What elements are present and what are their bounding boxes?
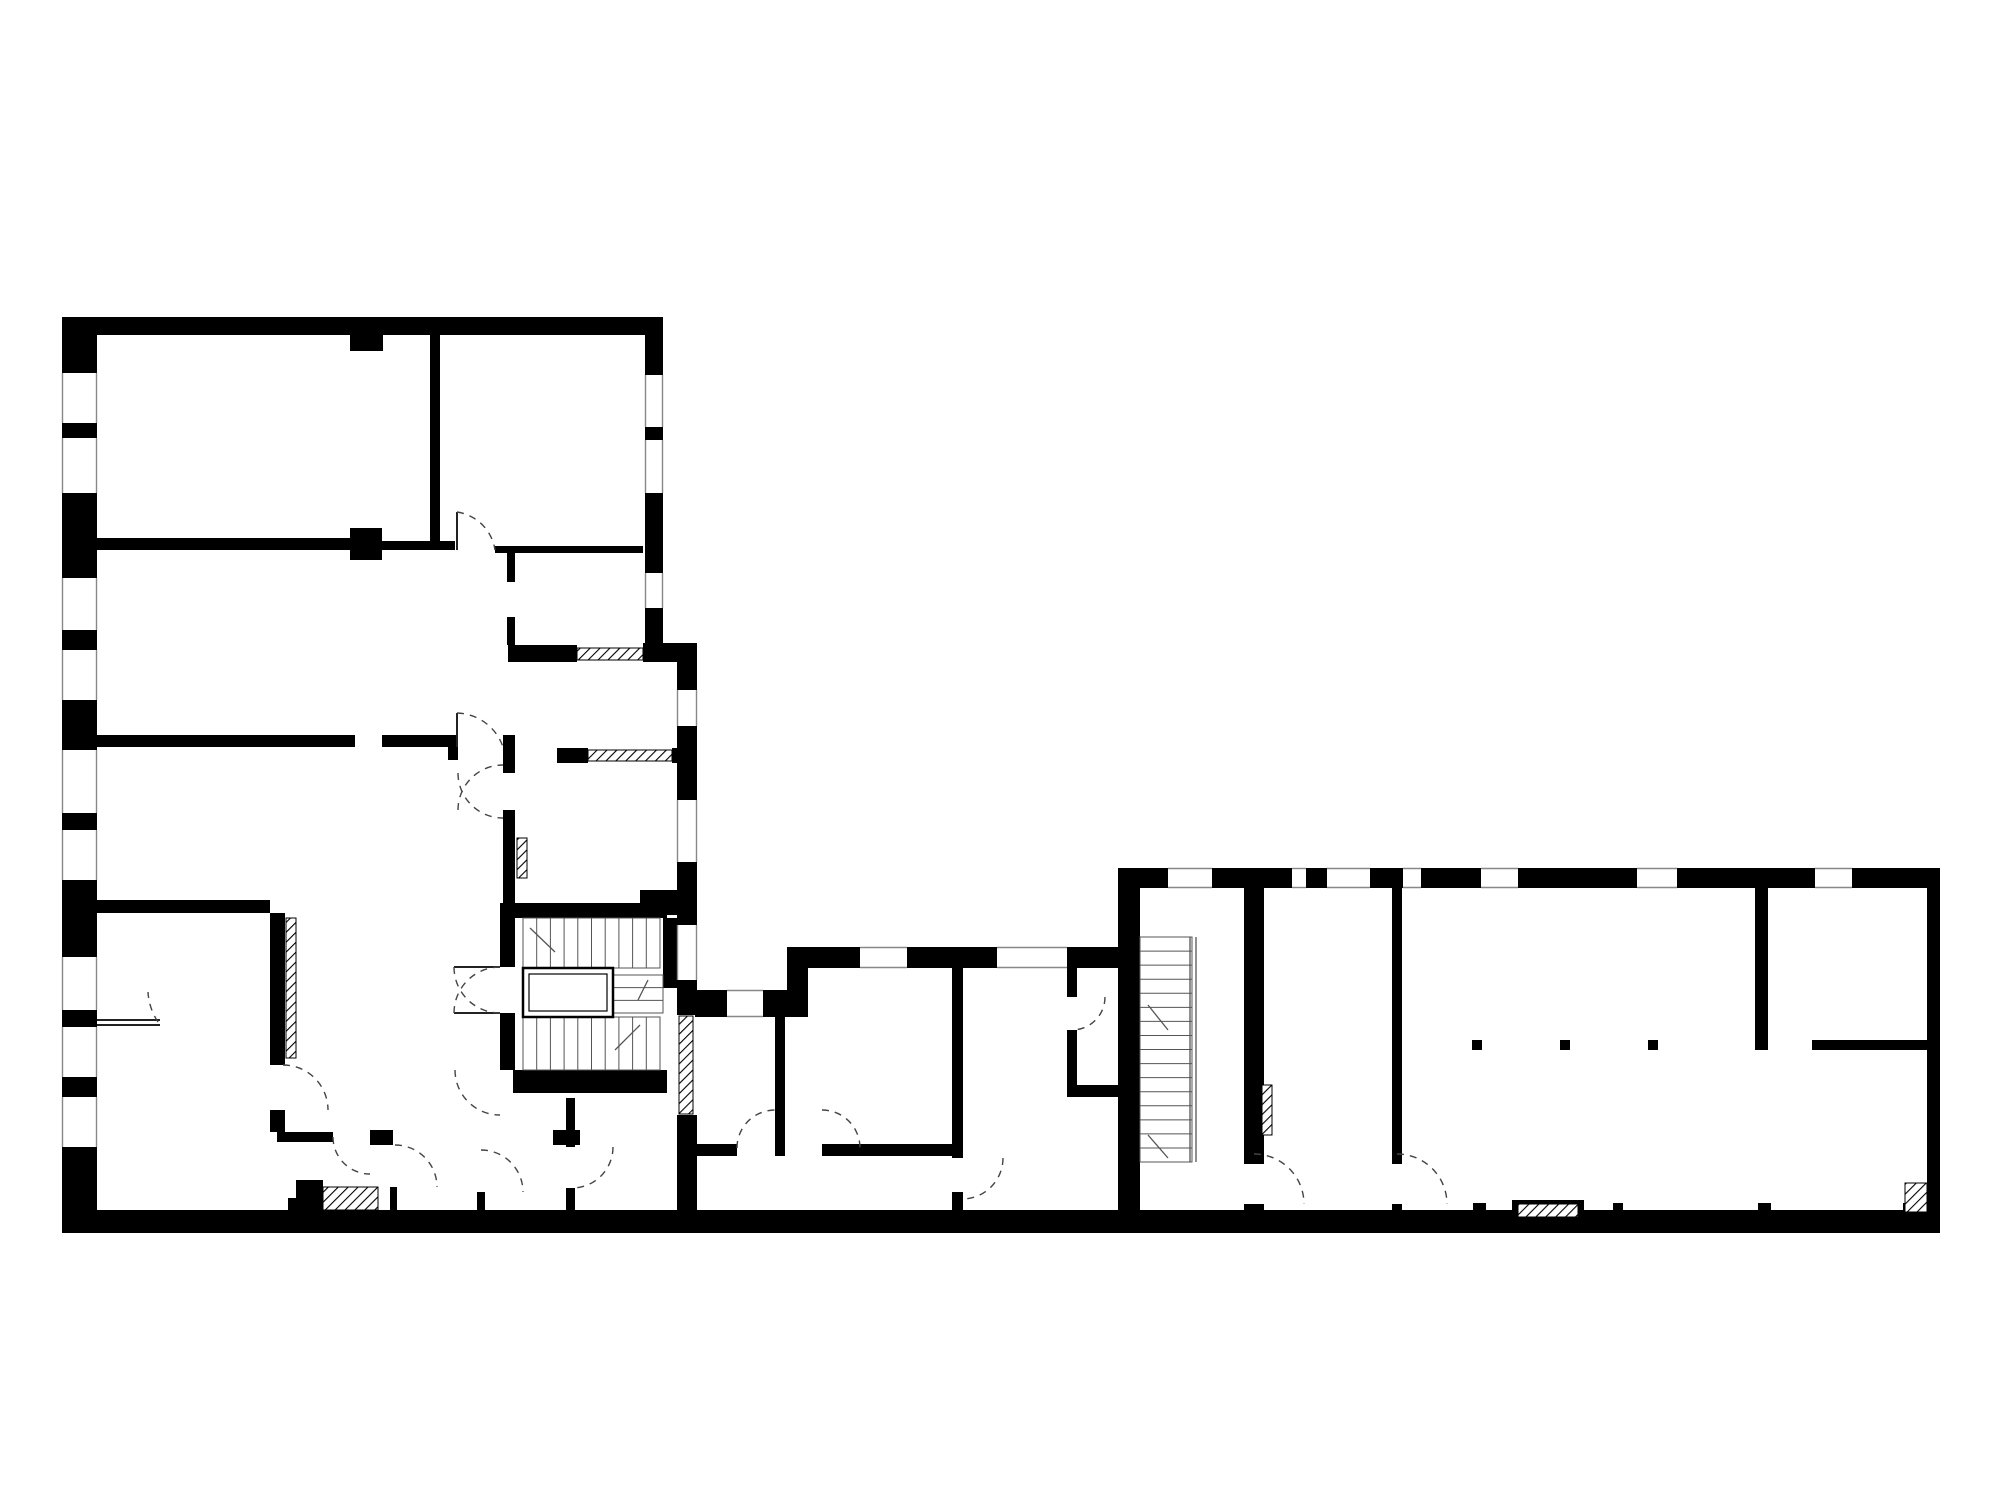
wall-segment [1067,968,1077,997]
wall-segment [1067,947,1123,968]
wall-segment [495,546,643,553]
window-gap [645,375,663,427]
wall-segment [62,317,97,373]
wall-segment [62,317,663,335]
wall-segment [1067,1085,1123,1097]
window-gap [62,578,97,630]
window-gap [62,1097,97,1147]
wall-segment [952,968,963,1158]
wall-segment [1812,1040,1927,1050]
wall-segment [350,528,382,560]
wall-segment [62,880,97,957]
wall-segment [1472,1040,1482,1050]
window-gap [1292,868,1306,888]
wall-segment [288,1198,296,1212]
elevator-inner [529,974,607,1011]
wall-segment [508,645,577,662]
wall-segment [507,617,515,645]
wall-segment [503,810,515,903]
wall-segment [97,735,355,747]
wall-segment [677,1115,697,1212]
wall-segment [907,947,997,968]
hatched-element [1262,1085,1272,1135]
wall-segment [557,748,588,763]
wall-segment [97,538,355,550]
window-gap [677,925,697,980]
wall-segment [62,1010,97,1027]
wall-segment [270,1110,285,1132]
window-gap [997,947,1067,968]
wall-segment [695,1144,737,1156]
wall-segment [503,735,515,773]
hatched-element [517,838,527,878]
wall-segment [952,1192,963,1212]
hatched-element [323,1187,378,1210]
hatched-element [1518,1204,1578,1217]
wall-segment [430,335,440,550]
wall-segment [643,643,697,662]
wall-segment [822,1144,963,1156]
window-gap [62,830,97,880]
wall-segment [1421,868,1481,888]
wall-segment [1118,868,1168,888]
wall-segment [645,608,663,647]
wall-segment [62,493,97,578]
wall-segment [62,1210,1940,1233]
window-gap [1168,868,1212,888]
wall-segment [695,990,727,1017]
window-gap [727,990,763,1017]
wall-segment [1613,1203,1623,1212]
hatched-element [577,648,643,660]
window-gap [860,947,907,968]
window-gap [645,440,663,493]
wall-segment [645,427,663,440]
wall-segment [62,1077,97,1097]
wall-segment [477,1192,485,1212]
wall-segment [62,423,97,438]
wall-segment [566,1188,575,1212]
window-gap [62,650,97,700]
wall-segment [97,900,270,913]
wall-segment [677,862,697,925]
window-gap [1815,868,1852,888]
window-gap [1481,868,1518,888]
hatched-element [679,1016,693,1114]
window-gap [62,438,97,493]
window-gap [62,750,97,813]
wall-segment [382,735,448,747]
window-gap [677,800,697,862]
window-gap [1637,868,1677,888]
wall-segment [566,1098,575,1147]
wall-segment [500,918,515,967]
wall-segment [645,335,663,375]
wall-segment [775,1144,785,1156]
wall-segment [1306,868,1327,888]
wall-segment [1758,1203,1771,1212]
wall-segment [500,903,667,918]
wall-segment [787,947,860,968]
wall-segment [775,1017,785,1150]
window-gap [1327,868,1370,888]
wall-segment [1852,868,1940,888]
wall-segment [1118,888,1140,1212]
wall-segment [270,913,285,1065]
wall-segment [1473,1203,1486,1212]
wall-segment [1244,1204,1264,1212]
wall-segment [1067,1030,1077,1085]
window-gap [62,957,97,1010]
wall-segment [677,662,697,690]
wall-segment [1927,868,1940,1212]
hatched-element [286,918,296,1058]
plan-background [0,0,2000,1500]
floor-plan-drawing [0,0,2000,1500]
wall-segment [370,1130,393,1145]
hatched-element [1905,1183,1927,1212]
wall-segment [62,700,97,750]
wall-segment [62,630,97,650]
elevator-shaft [523,968,613,1017]
window-gap [677,690,697,726]
wall-segment [1648,1040,1658,1050]
wall-segment [507,553,515,582]
wall-segment [1392,1204,1402,1212]
wall-segment [513,1070,667,1093]
wall-segment [390,1187,397,1212]
wall-segment [296,1180,323,1212]
wall-segment [1392,888,1402,1164]
wall-segment [645,493,663,573]
wall-segment [62,813,97,830]
wall-segment [1677,868,1815,888]
wall-segment [1755,888,1768,1050]
wall-segment [763,990,808,1017]
window-gap [62,1027,97,1077]
window-gap [1403,868,1421,888]
wall-segment [1560,1040,1570,1050]
wall-segment [1244,888,1264,1164]
wall-segment [350,335,383,351]
wall-segment [1518,868,1637,888]
wall-segment [1370,868,1403,888]
wall-segment [500,1013,515,1070]
wall-segment [277,1132,333,1142]
window-gap [645,573,663,608]
wall-segment [672,748,697,763]
wall-segment [382,541,455,550]
wall-segment [1212,868,1292,888]
window-gap [62,373,97,423]
hatched-element [588,750,672,761]
floor-plan-page [0,0,2000,1500]
